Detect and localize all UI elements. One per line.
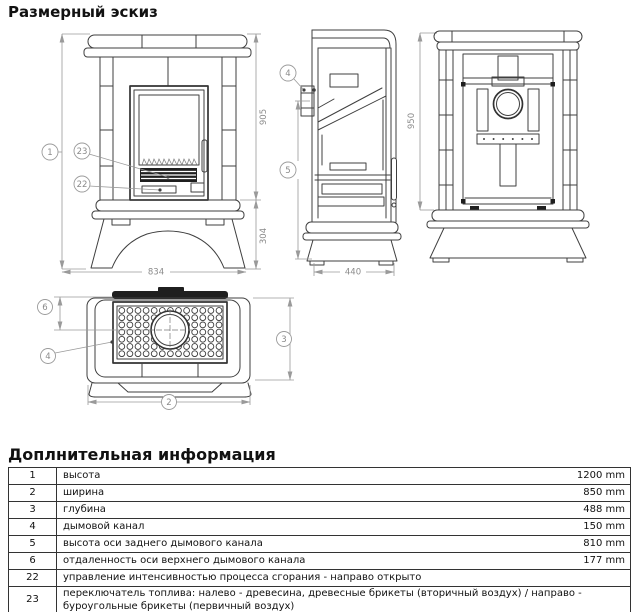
row-value: 150 mm (578, 519, 630, 535)
callout-offset-6: 6 (38, 300, 53, 315)
callout-depth-3: 3 (277, 332, 292, 347)
callout-grid-4: 4 (41, 349, 56, 364)
table-row: 22управление интенсивностью процесса сго… (9, 569, 630, 586)
row-description: глубина (57, 502, 578, 518)
svg-text:4: 4 (45, 352, 50, 362)
callout-flue-height-5: 5 (280, 162, 296, 178)
row-value (620, 587, 630, 612)
side-view-drawing: 4 5 440 (280, 30, 401, 278)
row-description: высота оси заднего дымового канала (57, 536, 578, 552)
row-description: дымовой канал (57, 519, 578, 535)
callout-air-control-23: 23 (74, 143, 90, 159)
row-number: 5 (9, 536, 57, 552)
flue-outlet-circle (494, 90, 523, 119)
svg-text:3: 3 (281, 335, 286, 345)
row-number: 4 (9, 519, 57, 535)
row-value: 177 mm (578, 553, 630, 569)
svg-text:23: 23 (77, 147, 88, 157)
callout-width-2: 2 (162, 395, 177, 410)
row-number: 2 (9, 485, 57, 501)
dim-950: 950 (407, 113, 417, 129)
svg-text:4: 4 (285, 69, 290, 79)
row-value (620, 570, 630, 586)
front-view-drawing: 1 (42, 34, 269, 278)
row-value: 488 mm (578, 502, 630, 518)
callout-height-1: 1 (42, 144, 58, 160)
callout-flue-4: 4 (280, 65, 296, 81)
row-number: 23 (9, 587, 57, 612)
row-description: ширина (57, 485, 578, 501)
row-description: переключатель топлива: налево - древесин… (57, 587, 620, 612)
svg-text:2: 2 (166, 398, 171, 408)
table-row: 2ширина850 mm (9, 484, 630, 501)
row-value: 850 mm (578, 485, 630, 501)
page: Размерный эскиз 1 (0, 0, 637, 612)
table-row: 1высота1200 mm (9, 468, 630, 484)
callout-fuel-switch-22: 22 (74, 176, 90, 192)
svg-text:22: 22 (77, 180, 88, 190)
table-row: 5высота оси заднего дымового канала810 m… (9, 535, 630, 552)
row-description: высота (57, 468, 572, 484)
top-view-drawing: 6 4 2 3 (38, 287, 295, 410)
row-value: 810 mm (578, 536, 630, 552)
row-number: 22 (9, 570, 57, 586)
dim-905: 905 (259, 109, 269, 125)
dim-440: 440 (345, 268, 361, 278)
svg-text:6: 6 (42, 303, 47, 313)
row-number: 1 (9, 468, 57, 484)
info-title: Доплнительная информация (8, 445, 276, 464)
table-row: 23переключатель топлива: налево - древес… (9, 586, 630, 612)
row-number: 6 (9, 553, 57, 569)
table-row: 6отдаленность оси верхнего дымового кана… (9, 552, 630, 569)
table-row: 4дымовой канал150 mm (9, 518, 630, 535)
row-number: 3 (9, 502, 57, 518)
dimensional-sketch: 1 (0, 18, 637, 443)
dim-304: 304 (259, 228, 269, 244)
rear-view-drawing: 950 (407, 31, 589, 262)
dim-834: 834 (148, 268, 164, 278)
row-value: 1200 mm (572, 468, 630, 484)
svg-text:1: 1 (47, 148, 52, 158)
row-description: отдаленность оси верхнего дымового канал… (57, 553, 578, 569)
side-door-handle (392, 158, 397, 200)
table-row: 3глубина488 mm (9, 501, 630, 518)
info-table: 1высота1200 mm2ширина850 mm3глубина488 m… (8, 467, 631, 612)
row-description: управление интенсивностью процесса сгора… (57, 570, 620, 586)
svg-text:5: 5 (285, 166, 290, 176)
